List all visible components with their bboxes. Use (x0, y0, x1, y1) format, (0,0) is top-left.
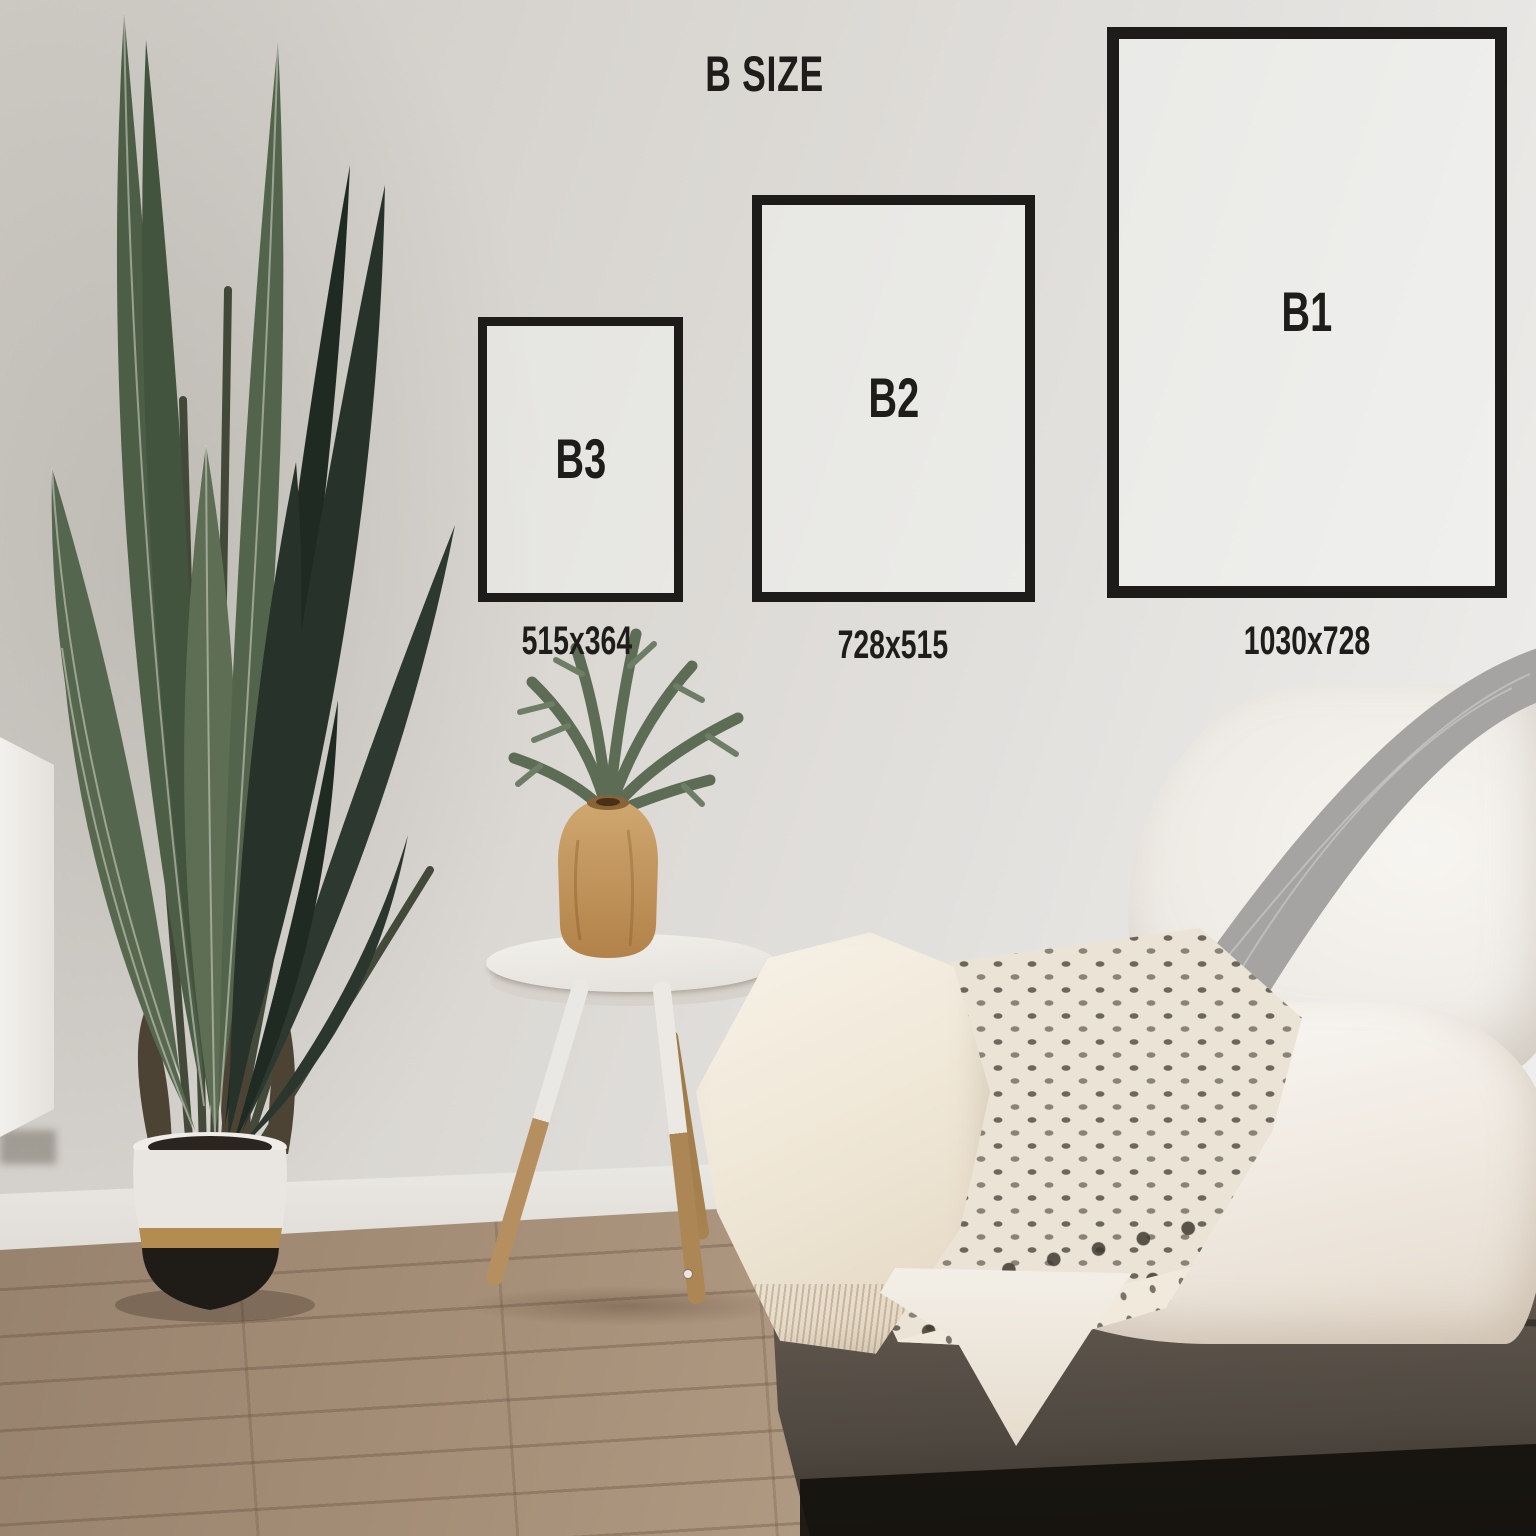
vase-with-fern (440, 620, 790, 990)
potted-plant (0, 0, 470, 1330)
size-frame-b2: B2 (752, 195, 1035, 602)
size-dimensions-b1-text: 1030x728 (1244, 620, 1370, 662)
size-frame-b3: B3 (478, 317, 683, 602)
plant-pot (133, 1132, 287, 1310)
size-dimensions-b2: 728x515 (783, 624, 1003, 666)
size-label-b3: B3 (555, 430, 606, 489)
size-dimensions-b3-text: 515x364 (522, 620, 633, 662)
size-frame-b1: B1 (1107, 27, 1507, 598)
table-leg-screw (684, 1270, 692, 1278)
size-dimensions-b1: 1030x728 (1197, 620, 1417, 662)
wooden-vase (558, 796, 658, 958)
size-dimensions-b2-text: 728x515 (838, 624, 949, 666)
size-dimensions-b3: 515x364 (467, 620, 687, 662)
room-scene: B SIZE B3 B2 B1 515x364 728x515 1030x728 (0, 0, 1536, 1536)
page-title-text: B SIZE (706, 48, 825, 101)
size-label-b1: B1 (1282, 283, 1333, 342)
page-title: B SIZE (595, 48, 935, 101)
size-label-b2: B2 (868, 369, 919, 428)
table-shadow (462, 1286, 792, 1326)
